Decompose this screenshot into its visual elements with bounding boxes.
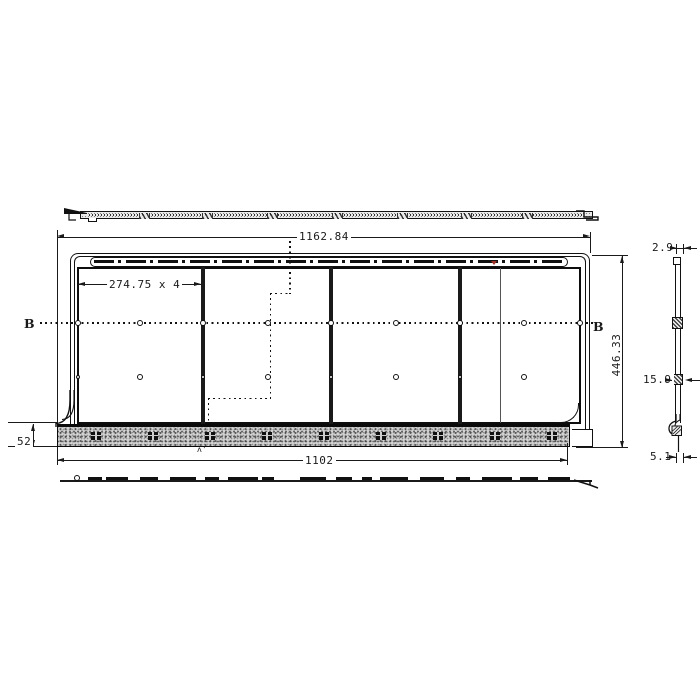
profile-rib-mark <box>202 213 213 220</box>
arrowhead <box>670 246 677 250</box>
dim-base-width-label: 1102 <box>303 455 336 467</box>
profile-bump <box>336 477 352 480</box>
cut-line <box>289 241 290 294</box>
profile-bump <box>262 477 274 480</box>
clip-mark <box>91 432 101 440</box>
top-profile-left-hook <box>60 203 88 225</box>
clip-mark <box>433 432 443 440</box>
arrowhead <box>194 282 201 286</box>
side-profile-clip-section <box>672 317 684 329</box>
profile-rib-mark <box>522 213 533 220</box>
side-profile-body <box>675 265 681 423</box>
arrowhead <box>685 378 692 382</box>
profile-bump <box>170 477 196 480</box>
dimension-line <box>691 380 700 381</box>
arrowhead <box>560 458 567 462</box>
frame-right-step <box>572 429 593 447</box>
profile-bump <box>482 477 512 480</box>
red-tick <box>491 261 497 265</box>
cut-mark: ʌ' <box>197 446 207 454</box>
arrowhead <box>78 282 85 286</box>
top-profile-right-hook <box>574 208 600 226</box>
clip-mark <box>319 432 329 440</box>
profile-bump <box>140 477 158 480</box>
side-profile-top-tab <box>673 257 681 265</box>
profile-bump <box>106 477 128 480</box>
arrowhead <box>620 441 624 448</box>
profile-bump <box>456 477 470 480</box>
clip-mark <box>205 432 215 440</box>
profile-bump <box>300 477 326 480</box>
drawing-canvas: 1162.84 B B ʌ' <box>0 0 700 700</box>
tick <box>676 453 677 463</box>
clip-mark <box>376 432 386 440</box>
arrowhead <box>31 424 35 431</box>
cut-line <box>270 293 271 399</box>
top-profile-bar <box>80 211 593 219</box>
profile-bump <box>228 477 258 480</box>
profile-rib-mark <box>139 213 150 220</box>
profile-rib-mark <box>332 213 343 220</box>
arrowhead <box>669 455 676 459</box>
profile-rib-mark <box>397 213 408 220</box>
divider <box>458 267 462 424</box>
top-profile-tab <box>88 218 97 222</box>
section-label-left: B <box>24 317 35 330</box>
profile-bump <box>420 477 444 480</box>
profile-rib-mark <box>461 213 472 220</box>
dim-module-pitch-label: 274.75 x 4 <box>107 279 182 291</box>
arrowhead <box>57 458 64 462</box>
bottom-profile-base <box>60 480 592 482</box>
clip-mark <box>148 432 158 440</box>
clip-mark <box>490 432 500 440</box>
section-label-right: B <box>593 320 604 333</box>
clip-mark <box>547 432 557 440</box>
profile-bump <box>362 477 372 480</box>
arrowhead <box>684 455 691 459</box>
seam-line <box>500 268 501 423</box>
profile-bump <box>380 477 408 480</box>
clip-mark <box>262 432 272 440</box>
arrowhead <box>583 234 590 238</box>
dim-base-height-label: 52 <box>15 436 33 448</box>
centerline <box>40 322 596 323</box>
divider <box>201 267 205 424</box>
cut-line <box>270 293 291 294</box>
arrowhead <box>684 246 691 250</box>
base-strip <box>57 424 570 447</box>
profile-bump <box>520 477 538 480</box>
divider <box>329 267 333 424</box>
arrowhead <box>620 256 624 263</box>
dim-overall-width-label: 1162.84 <box>297 231 351 243</box>
tick <box>676 244 677 254</box>
arrowhead <box>57 234 64 238</box>
cut-line <box>208 398 271 399</box>
profile-bump <box>88 477 102 480</box>
dim-overall-height-label: 446.33 <box>611 330 623 380</box>
bottom-profile-right-hook <box>574 478 600 492</box>
profile-bump <box>548 477 570 480</box>
arrowhead <box>665 378 672 382</box>
profile-bump <box>205 477 219 480</box>
profile-rib-mark <box>267 213 278 220</box>
